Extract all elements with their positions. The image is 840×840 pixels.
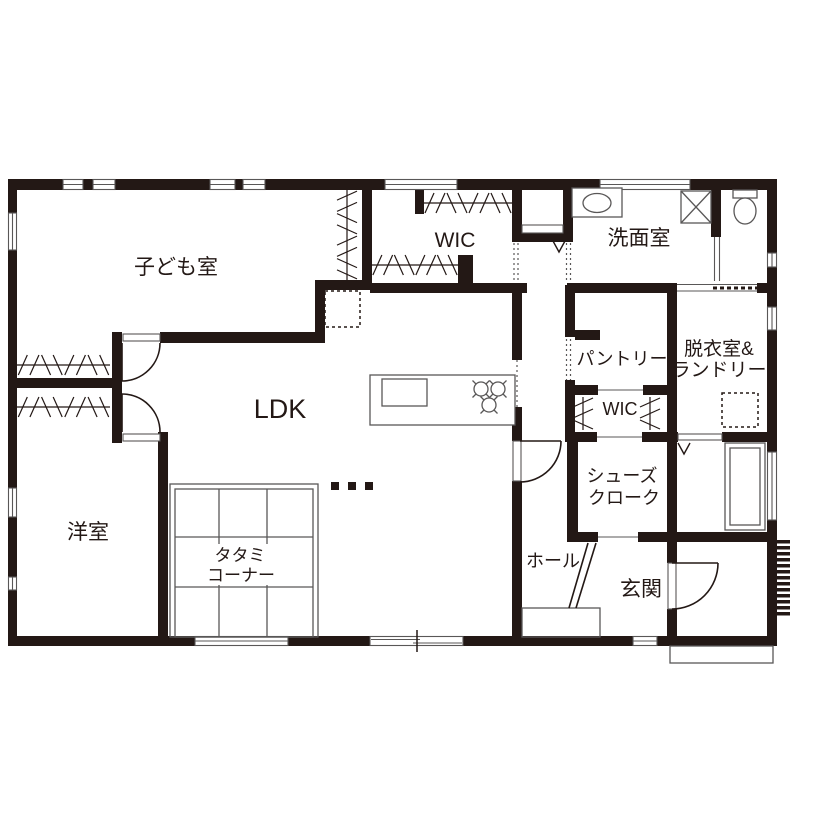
door-mark bbox=[678, 443, 690, 454]
front-door bbox=[672, 563, 718, 609]
window bbox=[93, 180, 115, 190]
window bbox=[633, 637, 657, 646]
window bbox=[768, 307, 777, 330]
room-label-western-room: 洋室 bbox=[67, 521, 109, 544]
room-label-laundry-1: 脱衣室& bbox=[684, 338, 754, 360]
sliding-door-toilet bbox=[715, 237, 720, 281]
marker-squares bbox=[331, 482, 373, 490]
window bbox=[63, 180, 83, 190]
room-label-shoes-cloak-2: クローク bbox=[588, 488, 660, 508]
room-label-shoes-cloak-1: シューズ bbox=[586, 466, 657, 486]
window bbox=[195, 637, 288, 646]
room-label-wic-main: WIC bbox=[435, 229, 476, 252]
room-label-tatami-2: コーナー bbox=[207, 566, 275, 585]
room-label-wic-entrance: WIC bbox=[603, 399, 638, 419]
room-label-laundry-2: ランドリー bbox=[671, 360, 766, 381]
window bbox=[385, 180, 457, 190]
door-kids-room bbox=[122, 343, 160, 381]
entrance-storage-shelf bbox=[725, 443, 765, 530]
window bbox=[9, 213, 17, 250]
window bbox=[210, 180, 235, 190]
floor-plan: 子ども室 WIC 洗面室 パントリー 脱衣室& ランドリー LDK WIC シュ… bbox=[0, 0, 840, 840]
floor-plan-page: 子ども室 WIC 洗面室 パントリー 脱衣室& ランドリー LDK WIC シュ… bbox=[0, 0, 840, 840]
window bbox=[9, 488, 17, 517]
fixtures bbox=[170, 188, 790, 663]
room-label-ldk: LDK bbox=[254, 394, 307, 424]
washbasin bbox=[572, 188, 622, 217]
window bbox=[768, 253, 777, 267]
porch bbox=[670, 646, 773, 663]
toilet bbox=[733, 190, 757, 224]
lattice-screen bbox=[777, 540, 790, 616]
refrigerator-space bbox=[325, 291, 360, 327]
window bbox=[243, 180, 265, 190]
window bbox=[9, 577, 17, 590]
door-mark bbox=[553, 241, 565, 252]
sliding-window bbox=[370, 630, 463, 652]
washing-machine-pan bbox=[681, 191, 711, 223]
room-label-tatami-1: タタミ bbox=[215, 546, 266, 565]
kitchen-counter bbox=[370, 375, 515, 425]
door-hall-ldk bbox=[520, 441, 561, 482]
room-label-pantry: パントリー bbox=[577, 349, 668, 369]
room-label-kids-room: 子ども室 bbox=[134, 256, 218, 279]
room-label-hall: ホール bbox=[526, 551, 580, 571]
washer-space bbox=[722, 393, 758, 427]
room-label-washroom: 洗面室 bbox=[608, 227, 671, 250]
door-western-room bbox=[122, 394, 160, 432]
room-label-entrance: 玄関 bbox=[620, 578, 662, 601]
window bbox=[768, 452, 777, 520]
